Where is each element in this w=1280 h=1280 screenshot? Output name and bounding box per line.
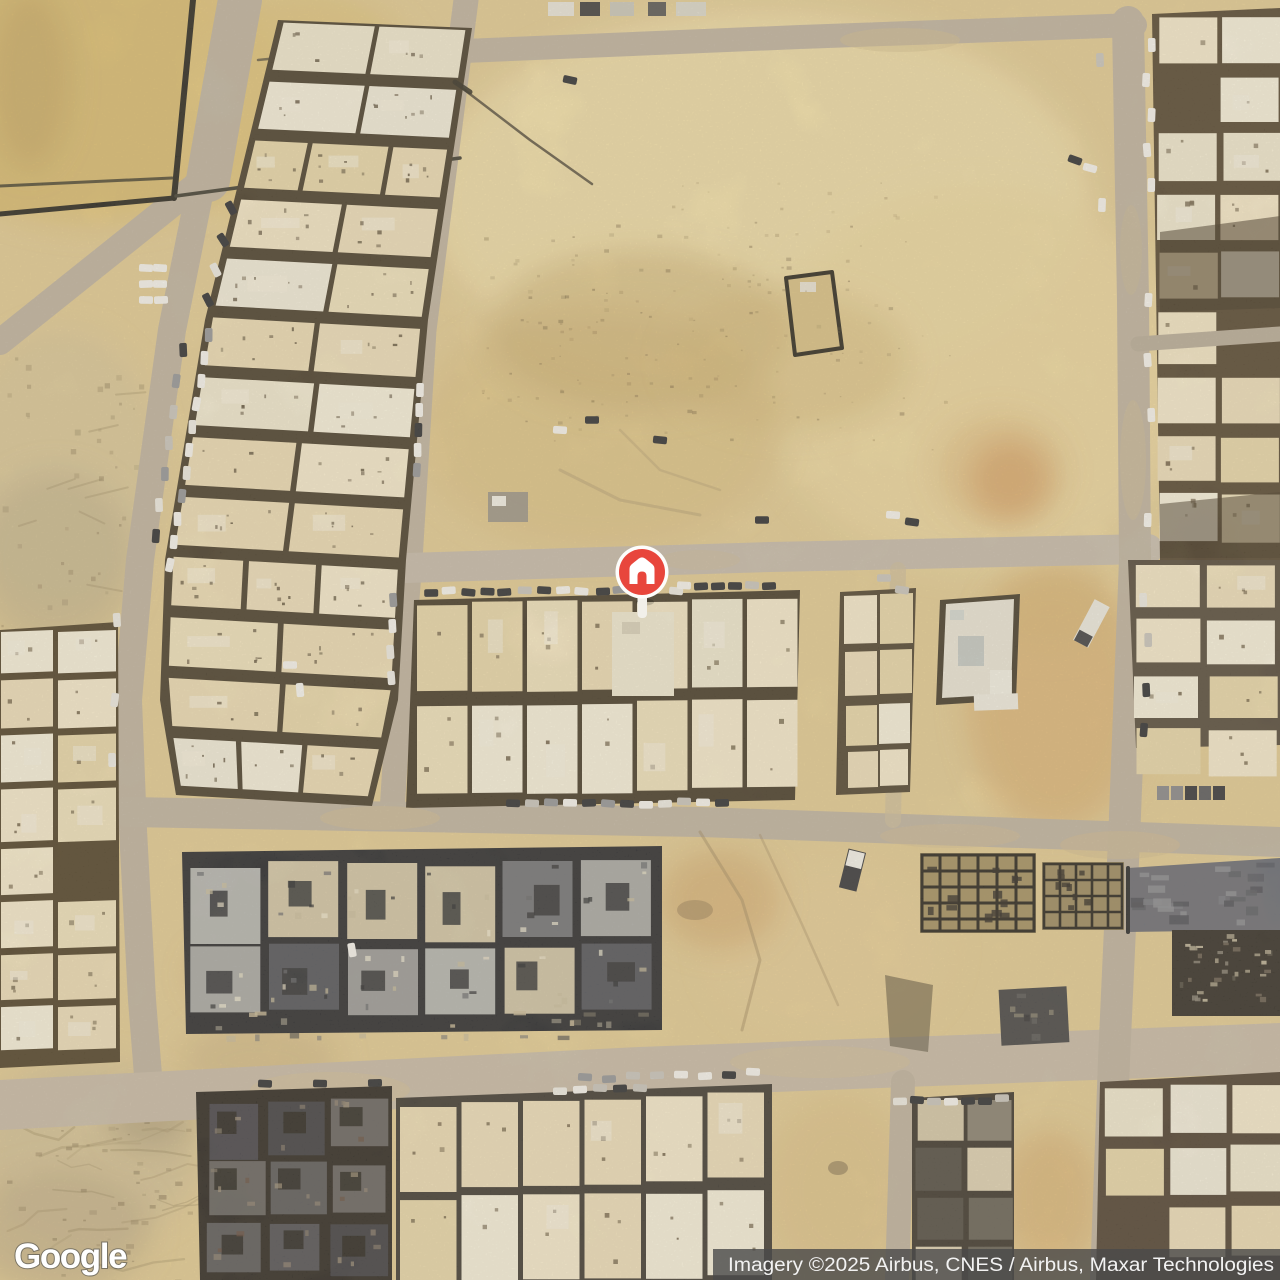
svg-text:Google: Google	[14, 1237, 127, 1276]
svg-text:Imagery ©2025 Airbus, CNES / A: Imagery ©2025 Airbus, CNES / Airbus, Max…	[728, 1255, 1274, 1276]
